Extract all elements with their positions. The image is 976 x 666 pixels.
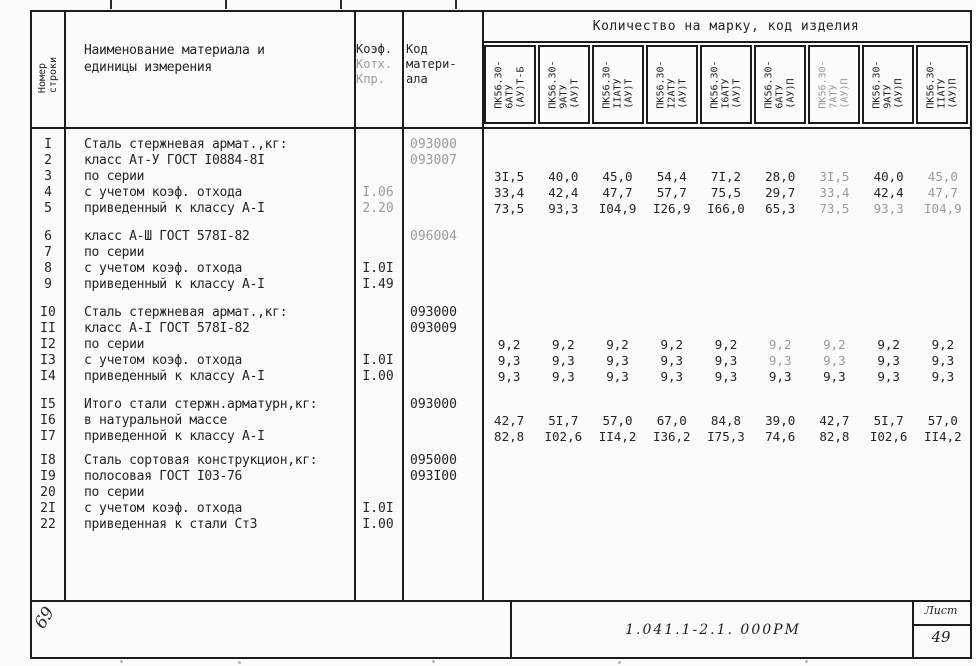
quantity-cells	[482, 453, 970, 469]
material-code	[402, 413, 482, 429]
coefficient-value	[354, 169, 402, 185]
quantity-value	[590, 453, 644, 469]
coefficient-value: I.0I	[354, 353, 402, 369]
grid-line	[482, 41, 970, 43]
quantity-value	[482, 137, 536, 153]
quantity-value: 65,3	[753, 201, 807, 217]
quantity-value	[482, 261, 536, 277]
quantity-value: 9,3	[590, 353, 644, 369]
quantity-value	[699, 261, 753, 277]
row-number: I7	[32, 429, 64, 445]
quantity-value	[482, 153, 536, 169]
row-number: 22	[32, 517, 64, 533]
quantity-value	[807, 501, 861, 517]
quantity-value	[482, 277, 536, 293]
material-code: 093I00	[402, 469, 482, 485]
column-header-row-number: Номер строки	[32, 34, 64, 116]
quantity-value	[916, 321, 970, 337]
quantity-value	[807, 261, 861, 277]
quantity-value: 9,3	[536, 353, 590, 369]
quantity-value	[482, 321, 536, 337]
quantity-value: 9,2	[699, 337, 753, 353]
material-header-line: единицы измерения	[84, 59, 265, 76]
quantity-value	[536, 501, 590, 517]
quantity-value	[862, 153, 916, 169]
scanned-steel-consumption-sheet: Номер строки Наименование материала и ед…	[0, 0, 976, 666]
row-number: I	[32, 137, 64, 153]
quantity-value	[699, 453, 753, 469]
quantity-value: 9,2	[536, 337, 590, 353]
scan-speck	[618, 661, 621, 664]
quantity-value	[807, 397, 861, 413]
quantity-value: 93,3	[536, 201, 590, 217]
material-code	[402, 369, 482, 385]
quantity-value: 5I,7	[862, 413, 916, 429]
quantity-value	[807, 485, 861, 501]
quantity-value	[807, 137, 861, 153]
quantity-value	[753, 397, 807, 413]
material-code	[402, 517, 482, 533]
quantity-cells	[482, 517, 970, 533]
quantity-value	[590, 229, 644, 245]
quantity-value: 9,2	[482, 337, 536, 353]
quantity-value	[699, 137, 753, 153]
quantity-value	[482, 305, 536, 321]
table-row: 3по серии3I,540,045,054,47I,228,03I,540,…	[32, 169, 970, 185]
quantity-value: 9,2	[807, 337, 861, 353]
coef-header-line: Коэф.	[356, 42, 402, 57]
quantity-value: 3I,5	[482, 169, 536, 185]
code-header-line: матери-	[406, 57, 457, 72]
row-number: 3	[32, 169, 64, 185]
quantity-value: 73,5	[482, 201, 536, 217]
quantity-value: 9,3	[862, 353, 916, 369]
quantity-value	[807, 469, 861, 485]
quantity-cells	[482, 321, 970, 337]
quantity-value	[536, 321, 590, 337]
material-block: IСталь стержневая армат.,кг:0930002класс…	[32, 137, 970, 217]
quantity-value	[862, 321, 916, 337]
quantity-value: 3I,5	[807, 169, 861, 185]
quantity-value	[699, 277, 753, 293]
material-name: приведенной к классу А-I	[64, 429, 354, 445]
row-number: I4	[32, 369, 64, 385]
scan-speck	[805, 660, 808, 663]
mark-label: ПК56.30- 9АТУ (АУ)Т	[548, 60, 581, 108]
material-code	[402, 501, 482, 517]
coefficient-value	[354, 485, 402, 501]
row-number: I3	[32, 353, 64, 369]
material-name: в натуральной массе	[64, 413, 354, 429]
row-number-label: Номер строки	[37, 57, 59, 93]
row-number: I5	[32, 397, 64, 413]
quantity-value	[536, 229, 590, 245]
quantity-value	[916, 517, 970, 533]
quantity-value	[645, 137, 699, 153]
quantity-cells: 42,75I,757,067,084,839,042,75I,757,0	[482, 413, 970, 429]
quantity-value	[807, 453, 861, 469]
mark-column-header: ПК56.30- I2АТУ (АУ)Т	[646, 45, 698, 124]
quantity-value: 9,3	[807, 369, 861, 385]
quantity-value	[916, 261, 970, 277]
mark-column-header: ПК56.30- 6АТУ (АУ)Т-Б	[484, 45, 536, 124]
quantity-value: 9,3	[482, 369, 536, 385]
sheet-label: Лист	[914, 604, 968, 617]
row-number: 8	[32, 261, 64, 277]
quantity-value	[482, 229, 536, 245]
material-code: 093009	[402, 321, 482, 337]
column-header-material-code: Код матери- ала	[406, 42, 457, 87]
table-row: 7по серии	[32, 245, 970, 261]
quantity-value	[645, 397, 699, 413]
quantity-value: 7I,2	[699, 169, 753, 185]
table-row: 2Iс учетом коэф. отходаI.0I	[32, 501, 970, 517]
quantity-value	[916, 485, 970, 501]
scan-speck	[120, 660, 123, 663]
quantity-value	[862, 245, 916, 261]
mark-label: ПК56.30- 6АТУ (АУ)Т-Б	[494, 60, 527, 108]
coefficient-value	[354, 337, 402, 353]
quantity-value	[753, 305, 807, 321]
quantity-value	[753, 277, 807, 293]
mark-label: ПК56.30- I6АТУ (АУ)Т	[710, 60, 743, 108]
material-name: с учетом коэф. отхода	[64, 185, 354, 201]
quantity-value	[699, 469, 753, 485]
row-number: I2	[32, 337, 64, 353]
quantity-value: 9,3	[807, 353, 861, 369]
quantity-value	[590, 469, 644, 485]
mark-column-header: ПК56.30- IIАТУ (АУ)П	[916, 45, 968, 124]
coefficient-value	[354, 153, 402, 169]
material-block: 6класс А-Ш ГОСТ 578I-820960047по серии8с…	[32, 229, 970, 293]
crop-tick	[455, 0, 457, 9]
quantity-value: I02,6	[536, 429, 590, 445]
quantity-value	[699, 517, 753, 533]
quantity-value: 42,4	[862, 185, 916, 201]
quantity-value	[753, 229, 807, 245]
quantity-value	[645, 469, 699, 485]
quantity-value: 54,4	[645, 169, 699, 185]
row-number: II	[32, 321, 64, 337]
quantity-value	[916, 501, 970, 517]
quantity-value: 9,3	[916, 369, 970, 385]
material-code	[402, 185, 482, 201]
quantity-value: 75,5	[699, 185, 753, 201]
coefficient-value: 2.20	[354, 201, 402, 217]
quantity-cells	[482, 397, 970, 413]
table-row: I8Сталь сортовая конструкцион,кг:095000	[32, 453, 970, 469]
quantity-value: 67,0	[645, 413, 699, 429]
quantity-value	[916, 137, 970, 153]
material-name: класс А-Ш ГОСТ 578I-82	[64, 229, 354, 245]
quantity-value	[536, 261, 590, 277]
quantity-value: 33,4	[482, 185, 536, 201]
mark-column-header: ПК56.30- I6АТУ (АУ)Т	[700, 45, 752, 124]
quantity-value	[699, 397, 753, 413]
material-code	[402, 337, 482, 353]
row-number: 20	[32, 485, 64, 501]
quantity-value: 9,3	[699, 353, 753, 369]
quantity-value	[536, 153, 590, 169]
quantity-value: 82,8	[482, 429, 536, 445]
quantity-value	[590, 501, 644, 517]
coefficient-value	[354, 321, 402, 337]
quantity-value	[699, 153, 753, 169]
quantity-cells	[482, 469, 970, 485]
quantity-value: II4,2	[590, 429, 644, 445]
quantity-value	[482, 485, 536, 501]
quantity-value: 9,3	[590, 369, 644, 385]
quantity-value	[807, 277, 861, 293]
quantity-value	[536, 245, 590, 261]
quantity-value	[753, 153, 807, 169]
material-name: Сталь сортовая конструкцион,кг:	[64, 453, 354, 469]
quantity-value	[645, 517, 699, 533]
quantity-value: 39,0	[753, 413, 807, 429]
material-code: 093007	[402, 153, 482, 169]
table-row: 2класс Ат-У ГОСТ I0884-8I093007	[32, 153, 970, 169]
quantity-value	[590, 397, 644, 413]
quantity-value: 73,5	[807, 201, 861, 217]
quantity-value	[590, 321, 644, 337]
quantity-value: 42,7	[807, 413, 861, 429]
quantity-value	[645, 501, 699, 517]
quantity-value: 9,2	[590, 337, 644, 353]
quantity-value	[916, 469, 970, 485]
quantity-value	[862, 137, 916, 153]
row-number: I8	[32, 453, 64, 469]
quantity-value	[753, 469, 807, 485]
quantity-value: 45,0	[916, 169, 970, 185]
quantity-value: 57,0	[916, 413, 970, 429]
material-name: по серии	[64, 337, 354, 353]
coefficient-value	[354, 137, 402, 153]
mark-column-header: ПК56.30- 9АТУ (АУ)П	[862, 45, 914, 124]
material-name: с учетом коэф. отхода	[64, 501, 354, 517]
crop-tick	[110, 0, 112, 9]
quantity-value	[536, 305, 590, 321]
material-code: 093000	[402, 397, 482, 413]
quantity-value	[753, 321, 807, 337]
quantity-value	[699, 229, 753, 245]
quantity-value: 5I,7	[536, 413, 590, 429]
material-name: по серии	[64, 485, 354, 501]
sheet-number: 49	[914, 628, 968, 646]
mark-column-header: ПК56.30- 7АТУ (АУ)П	[808, 45, 860, 124]
quantity-value: 33,4	[807, 185, 861, 201]
quantity-value	[916, 229, 970, 245]
quantity-cells	[482, 261, 970, 277]
quantity-value	[536, 453, 590, 469]
quantity-value	[590, 485, 644, 501]
quantity-cells	[482, 153, 970, 169]
mark-label: ПК56.30- 6АТУ (АУ)П	[764, 60, 797, 108]
row-number: I0	[32, 305, 64, 321]
materials-table: Номер строки Наименование материала и ед…	[30, 10, 972, 659]
quantity-value: 42,7	[482, 413, 536, 429]
quantity-value: 82,8	[807, 429, 861, 445]
quantity-value	[590, 137, 644, 153]
quantity-value	[916, 245, 970, 261]
material-code	[402, 485, 482, 501]
table-row: I2по серии9,29,29,29,29,29,29,29,29,2	[32, 337, 970, 353]
quantity-value	[807, 321, 861, 337]
coefficient-value	[354, 453, 402, 469]
material-name: Сталь стержневая армат.,кг:	[64, 137, 354, 153]
quantity-value	[645, 305, 699, 321]
mark-label: ПК56.30- 9АТУ (АУ)П	[872, 60, 905, 108]
quantity-value: 47,7	[590, 185, 644, 201]
quantity-value	[482, 469, 536, 485]
quantity-value: 9,2	[753, 337, 807, 353]
material-name: Итого стали стержн.арматурн,кг:	[64, 397, 354, 413]
quantity-cells: 9,39,39,39,39,39,39,39,39,3	[482, 369, 970, 385]
mark-label: ПК56.30- I2АТУ (АУ)Т	[656, 60, 689, 108]
table-row: I6в натуральной массе42,75I,757,067,084,…	[32, 413, 970, 429]
quantity-value	[645, 261, 699, 277]
table-row: IIкласс А-I ГОСТ 578I-82093009	[32, 321, 970, 337]
quantity-value	[590, 517, 644, 533]
quantity-cells: 73,593,3I04,9I26,9I66,065,373,593,3I04,9	[482, 201, 970, 217]
quantity-value	[916, 277, 970, 293]
quantity-cells	[482, 137, 970, 153]
quantity-value: I04,9	[590, 201, 644, 217]
quantity-value	[753, 517, 807, 533]
row-number: 2I	[32, 501, 64, 517]
coefficient-value: I.0I	[354, 261, 402, 277]
quantity-value: 9,3	[916, 353, 970, 369]
quantity-value	[862, 453, 916, 469]
quantity-value	[536, 517, 590, 533]
row-number: 4	[32, 185, 64, 201]
coefficient-value: I.06	[354, 185, 402, 201]
quantity-cells: 9,39,39,39,39,39,39,39,39,3	[482, 353, 970, 369]
material-name: Сталь стержневая армат.,кг:	[64, 305, 354, 321]
quantity-value	[916, 397, 970, 413]
quantity-value	[862, 397, 916, 413]
quantity-value: II4,2	[916, 429, 970, 445]
material-name: приведенный к классу А-I	[64, 201, 354, 217]
quantity-value	[590, 261, 644, 277]
quantity-value	[807, 229, 861, 245]
quantity-value	[699, 501, 753, 517]
quantity-value	[753, 501, 807, 517]
quantity-value: 9,2	[862, 337, 916, 353]
crop-tick	[225, 0, 227, 9]
quantity-value: I04,9	[916, 201, 970, 217]
quantity-value	[590, 277, 644, 293]
material-name: с учетом коэф. отхода	[64, 261, 354, 277]
quantity-value: 57,7	[645, 185, 699, 201]
row-number: 9	[32, 277, 64, 293]
material-block: I8Сталь сортовая конструкцион,кг:095000I…	[32, 453, 970, 533]
coefficient-value	[354, 305, 402, 321]
quantity-group-header: Количество на марку, код изделия	[482, 19, 970, 34]
quantity-value: 93,3	[862, 201, 916, 217]
table-row: 6класс А-Ш ГОСТ 578I-82096004	[32, 229, 970, 245]
column-header-material: Наименование материала и единицы измерен…	[84, 42, 265, 76]
quantity-value: I02,6	[862, 429, 916, 445]
material-code	[402, 429, 482, 445]
quantity-value	[753, 137, 807, 153]
column-header-coefficient: Коэф. Котх. Кпр.	[356, 42, 402, 87]
material-code	[402, 261, 482, 277]
quantity-value	[645, 153, 699, 169]
coefficient-value	[354, 245, 402, 261]
coefficient-value	[354, 469, 402, 485]
table-row: 20по серии	[32, 485, 970, 501]
quantity-value	[862, 277, 916, 293]
mark-column-header: ПК56.30- 9АТУ (АУ)Т	[538, 45, 590, 124]
quantity-cells	[482, 485, 970, 501]
material-code	[402, 353, 482, 369]
table-row: 4с учетом коэф. отходаI.0633,442,447,757…	[32, 185, 970, 201]
quantity-value: I66,0	[699, 201, 753, 217]
quantity-value	[645, 485, 699, 501]
quantity-value: I36,2	[645, 429, 699, 445]
quantity-value	[699, 305, 753, 321]
table-row: I5Итого стали стержн.арматурн,кг:093000	[32, 397, 970, 413]
material-name: полосовая ГОСТ I03-76	[64, 469, 354, 485]
quantity-value	[862, 517, 916, 533]
coefficient-value: I.49	[354, 277, 402, 293]
material-name: класс А-I ГОСТ 578I-82	[64, 321, 354, 337]
quantity-value: I26,9	[645, 201, 699, 217]
quantity-cells	[482, 305, 970, 321]
coefficient-value: I.0I	[354, 501, 402, 517]
quantity-cells: 82,8I02,6II4,2I36,2I75,374,682,8I02,6II4…	[482, 429, 970, 445]
quantity-cells: 9,29,29,29,29,29,29,29,29,2	[482, 337, 970, 353]
code-header-line: Код	[406, 42, 457, 57]
quantity-value	[536, 485, 590, 501]
material-name: приведенная к стали Ст3	[64, 517, 354, 533]
material-block: I0Сталь стержневая армат.,кг:093000IIкла…	[32, 305, 970, 385]
material-code	[402, 277, 482, 293]
row-number: 6	[32, 229, 64, 245]
quantity-value	[753, 245, 807, 261]
quantity-value: 28,0	[753, 169, 807, 185]
scan-speck	[432, 660, 435, 663]
quantity-cells	[482, 277, 970, 293]
quantity-value: 9,3	[753, 353, 807, 369]
table-row: I3с учетом коэф. отходаI.0I9,39,39,39,39…	[32, 353, 970, 369]
table-row: I7приведенной к классу А-I82,8I02,6II4,2…	[32, 429, 970, 445]
mark-label: ПК56.30- IIАТУ (АУ)П	[926, 60, 959, 108]
quantity-value: 9,3	[645, 369, 699, 385]
mark-label: ПК56.30- IIАТУ (АУ)Т	[602, 60, 635, 108]
coef-header-line: Кпр.	[356, 72, 402, 87]
code-header-line: ала	[406, 72, 457, 87]
coefficient-value	[354, 397, 402, 413]
quantity-value	[536, 469, 590, 485]
quantity-value	[807, 517, 861, 533]
quantity-value	[645, 321, 699, 337]
material-code	[402, 169, 482, 185]
row-number: 5	[32, 201, 64, 217]
quantity-value	[536, 137, 590, 153]
document-number: 1.041.1-2.1. 000РМ	[512, 602, 914, 657]
quantity-value	[807, 245, 861, 261]
quantity-value	[590, 305, 644, 321]
row-number: 7	[32, 245, 64, 261]
material-name: приведенный к классу А-I	[64, 369, 354, 385]
row-number: I6	[32, 413, 64, 429]
quantity-value: 9,3	[645, 353, 699, 369]
table-row: 22приведенная к стали Ст3I.00	[32, 517, 970, 533]
quantity-value	[699, 321, 753, 337]
table-body: IСталь стержневая армат.,кг:0930002класс…	[32, 129, 970, 533]
quantity-value	[862, 261, 916, 277]
